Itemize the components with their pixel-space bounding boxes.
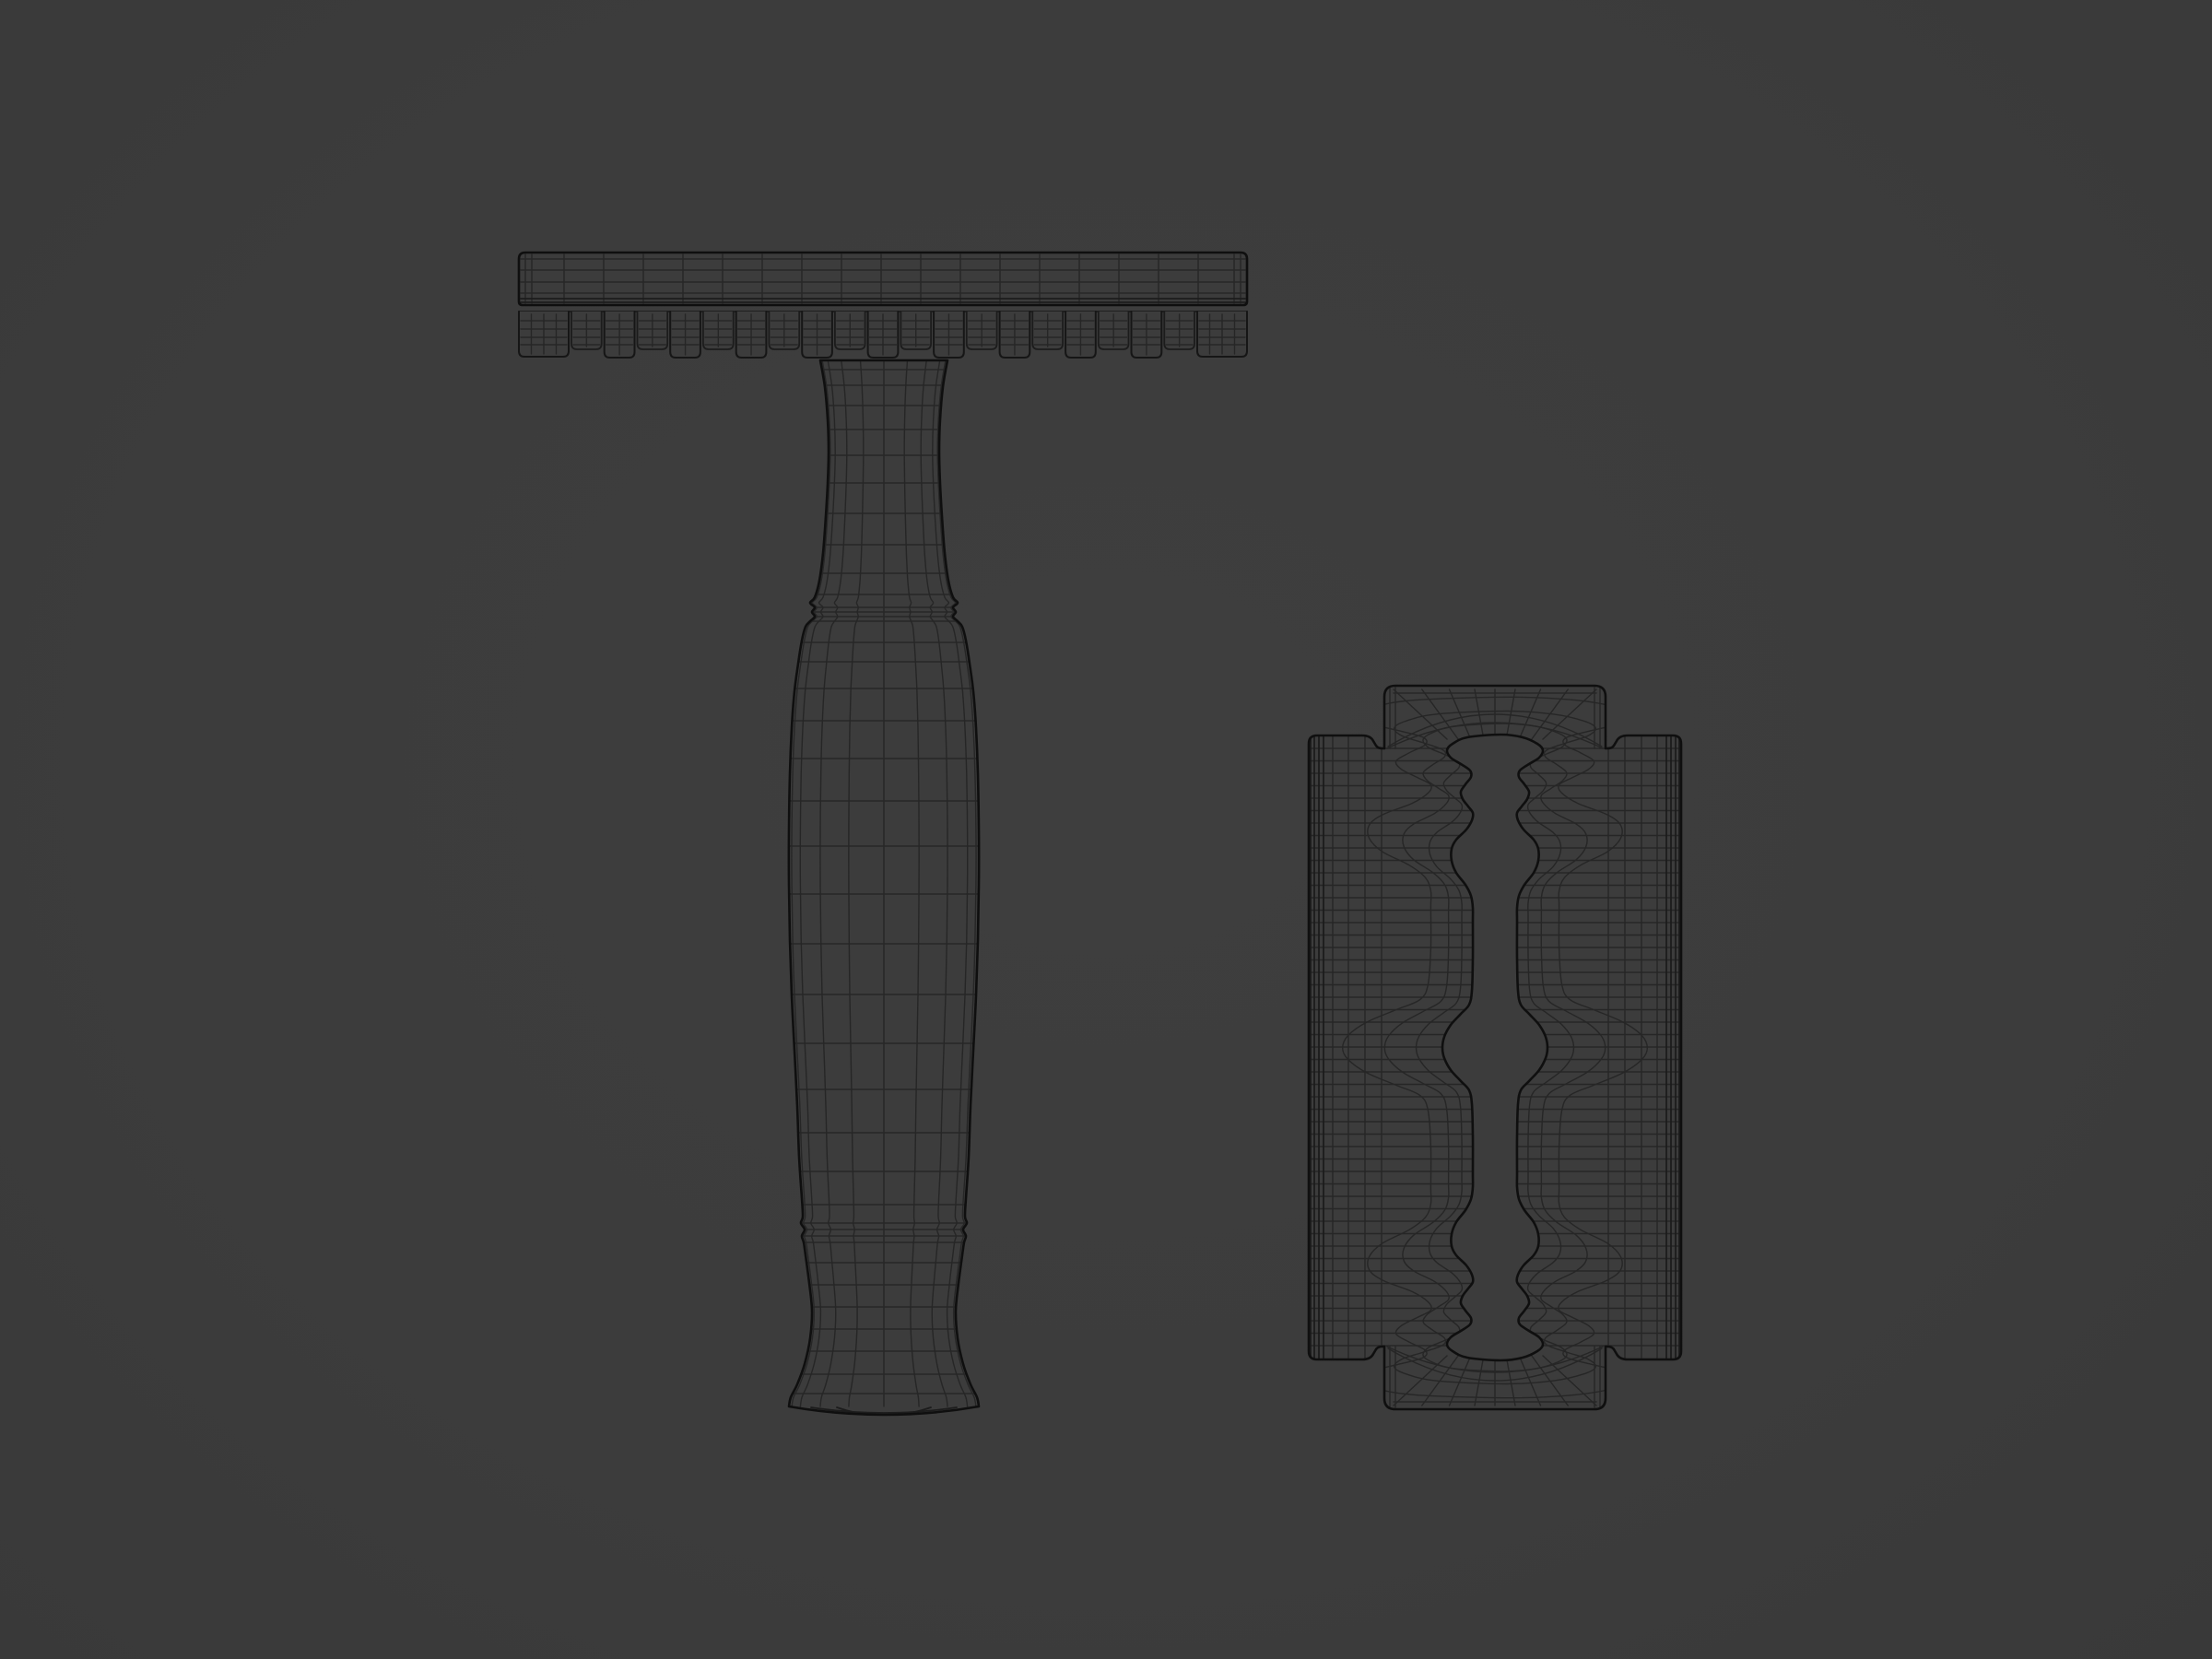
wireframe-canvas[interactable] [0,0,2212,1659]
razor-head-cap [519,253,1247,305]
de-blade-model[interactable] [1309,686,1681,1409]
viewport[interactable] [0,0,2212,1659]
safety-razor-model[interactable] [519,253,1247,1416]
razor-cap-plate [519,253,1247,305]
razor-handle [789,360,979,1416]
razor-comb-baseplate [519,312,1247,358]
